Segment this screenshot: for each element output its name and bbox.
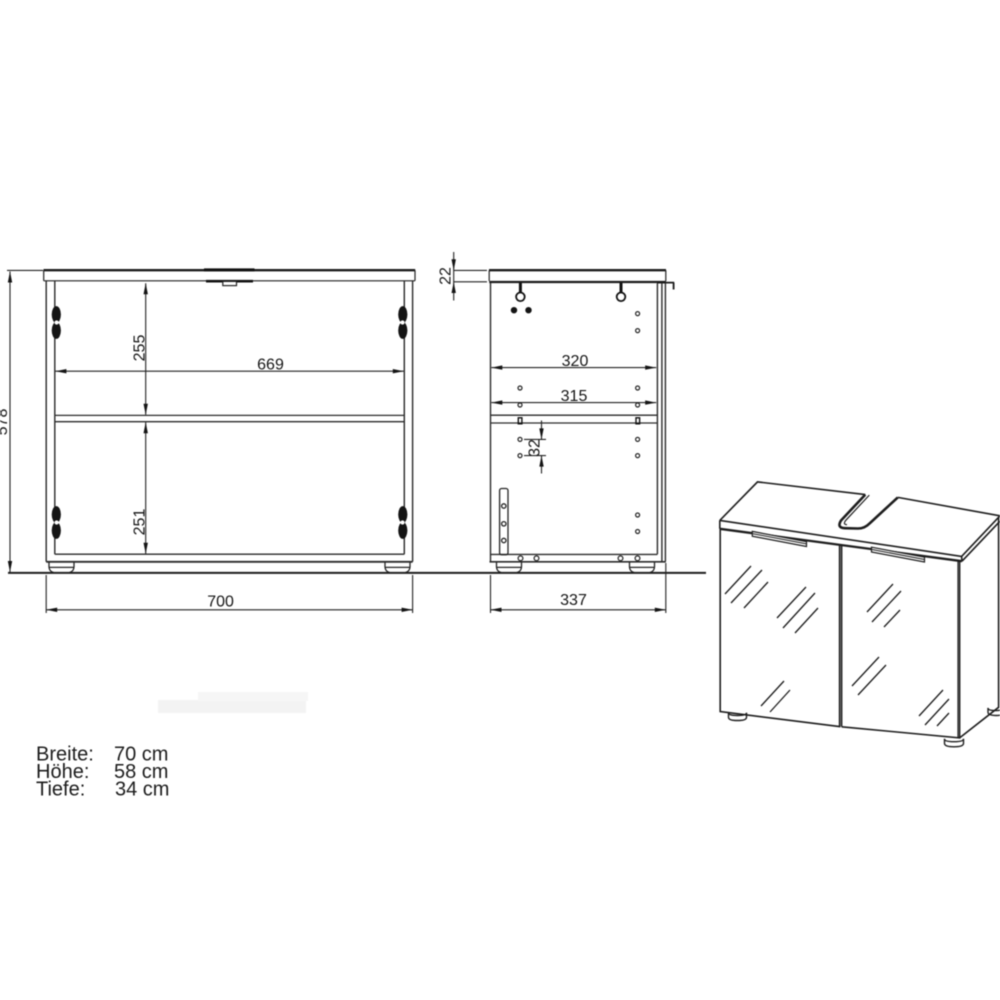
svg-text:315: 315 [561,388,588,405]
svg-text:255: 255 [132,335,149,362]
svg-text:578: 578 [0,409,11,436]
svg-text:251: 251 [132,509,149,536]
svg-text:700: 700 [207,593,234,610]
svg-text:337: 337 [560,592,587,609]
svg-text:22: 22 [438,267,455,285]
svg-text:669: 669 [257,357,284,374]
svg-text:32: 32 [527,439,544,457]
svg-text:320: 320 [562,353,589,370]
svg-text:34 cm: 34 cm [115,779,169,801]
svg-text:Tiefe:: Tiefe: [36,779,85,801]
